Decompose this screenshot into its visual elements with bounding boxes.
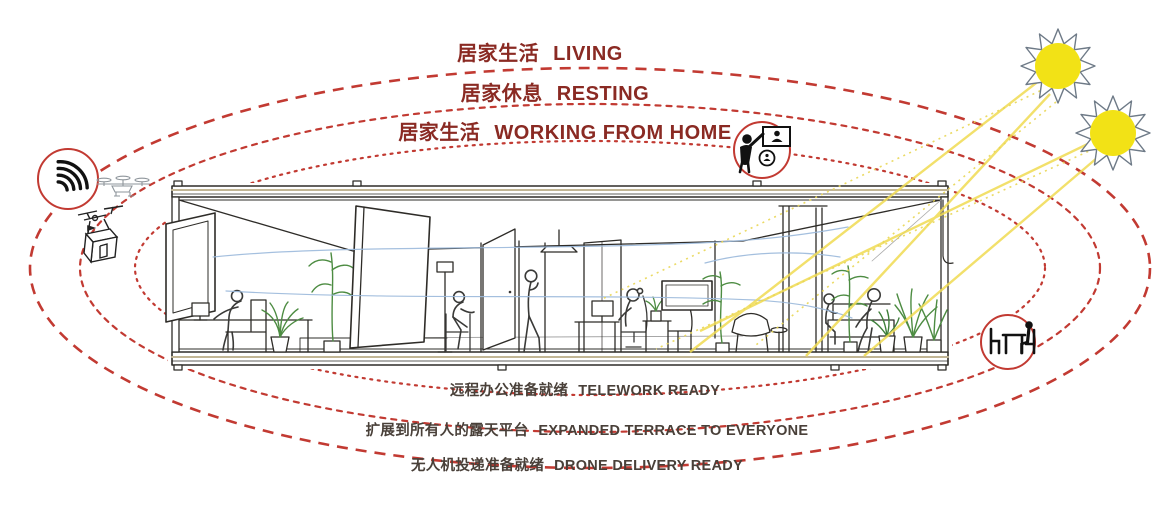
wifi-icon [38,149,98,209]
right-facade-column [941,197,948,352]
orbit-label-working-zh: 居家生活 [398,122,480,144]
video-call-icon [734,122,790,178]
drone-sketch-icon [97,176,150,196]
orbit-label-resting-en: RESTING [557,83,649,105]
orbit-label-terrace-en: EXPANDED TERRACE TO EVERYONE [538,423,808,439]
orbit-label-resting-zh: 居家休息 [461,83,543,105]
orbit-label-terrace-zh: 扩展到所有人的露天平台 [366,423,529,439]
sun-icon [1021,29,1095,103]
orbit-label-terrace: 扩展到所有人的露天平台EXPANDED TERRACE TO EVERYONE [366,419,809,440]
orbit-label-telework-en: TELEWORK READY [578,383,720,399]
delivery-drone-icon [78,206,123,262]
orbit-label-working-from-home: 居家生活WORKING FROM HOME [398,116,731,145]
building-section-illustration [166,181,953,370]
telework-desk-icon [981,315,1035,369]
sun-icon [1076,96,1150,170]
orbit-label-working-en: WORKING FROM HOME [494,122,731,144]
orbit-label-living-zh: 居家生活 [457,43,539,65]
orbit-label-living-en: LIVING [553,43,623,65]
orbit-label-drone-en: DRONE DELIVERY READY [554,458,743,474]
diagram-canvas: 居家生活LIVING 居家休息RESTING 居家生活WORKING FROM … [0,0,1170,516]
orbit-label-resting: 居家休息RESTING [461,77,649,106]
orbit-label-telework-zh: 远程办公准备就绪 [450,383,568,399]
orbit-label-telework: 远程办公准备就绪TELEWORK READY [450,379,720,400]
orbit-label-living: 居家生活LIVING [457,37,623,66]
orbit-label-drone-delivery: 无人机投递准备就绪DRONE DELIVERY READY [411,454,743,475]
orbit-label-drone-zh: 无人机投递准备就绪 [411,458,544,474]
pivot-wall-panel [350,206,430,348]
